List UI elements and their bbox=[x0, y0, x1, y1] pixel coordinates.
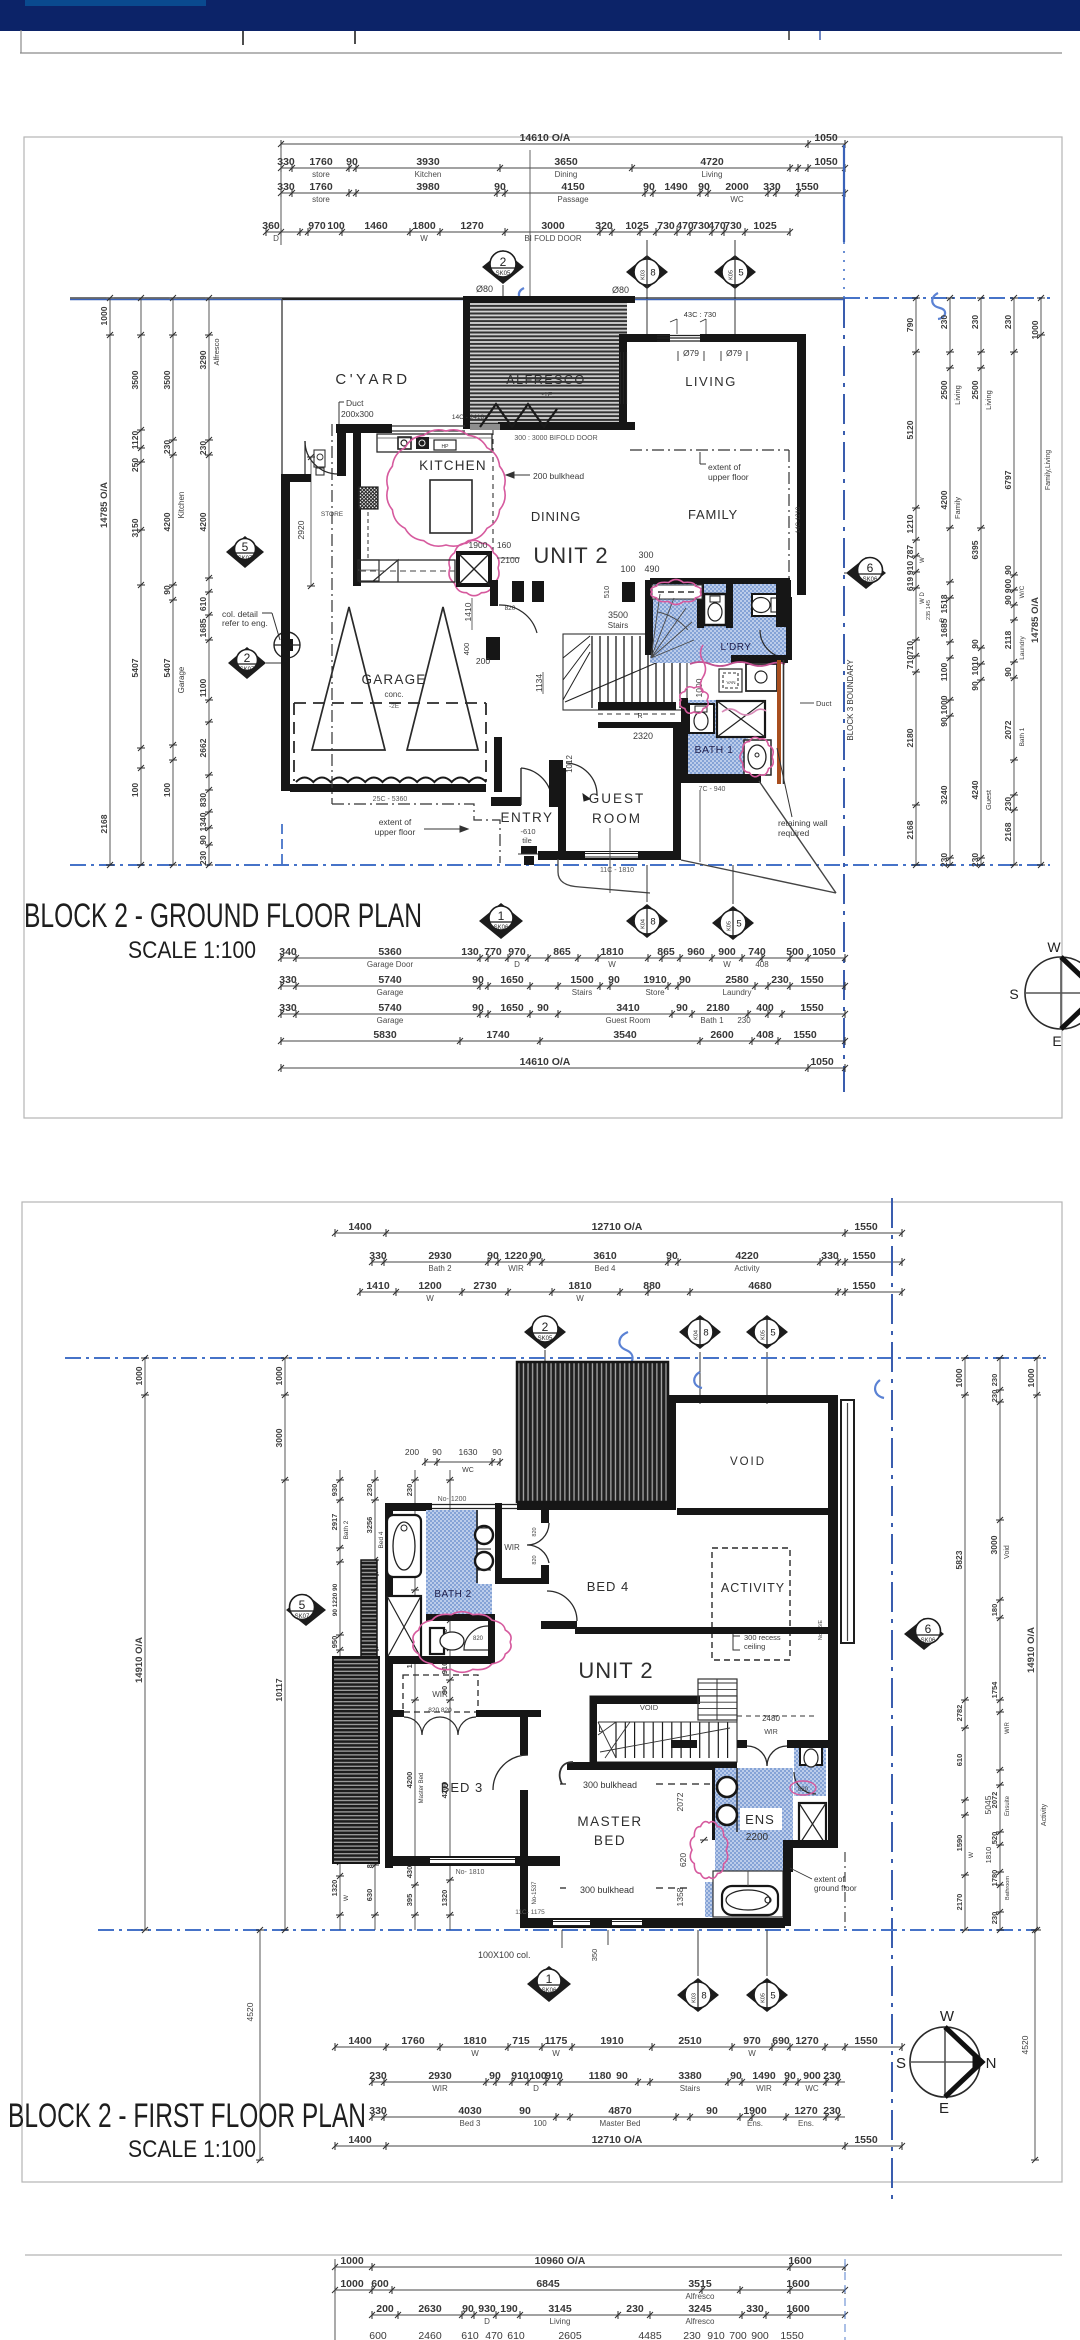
svg-text:Activity: Activity bbox=[1041, 1803, 1048, 1826]
svg-text:14785 O/A: 14785 O/A bbox=[1030, 597, 1041, 643]
svg-text:1490: 1490 bbox=[664, 181, 688, 193]
svg-text:14910 O/A: 14910 O/A bbox=[134, 1637, 145, 1683]
svg-text:100: 100 bbox=[162, 783, 172, 797]
svg-text:Bath 1: Bath 1 bbox=[1019, 727, 1026, 746]
svg-text:2168: 2168 bbox=[99, 814, 109, 833]
svg-text:Void: Void bbox=[1004, 1545, 1011, 1559]
svg-text:970: 970 bbox=[743, 2035, 761, 2047]
svg-text:330: 330 bbox=[746, 2303, 764, 2315]
svg-text:6845: 6845 bbox=[536, 2278, 560, 2290]
svg-text:250: 250 bbox=[130, 458, 140, 472]
svg-text:SK06: SK06 bbox=[921, 1638, 936, 1644]
svg-text:Bath 1: Bath 1 bbox=[700, 1016, 724, 1025]
svg-text:230: 230 bbox=[198, 441, 208, 455]
svg-text:500: 500 bbox=[786, 946, 804, 958]
svg-text:5: 5 bbox=[242, 540, 249, 554]
svg-text:820: 820 bbox=[473, 1636, 484, 1642]
svg-text:90: 90 bbox=[492, 1447, 502, 1457]
svg-text:N: N bbox=[986, 2055, 997, 2072]
svg-text:2000: 2000 bbox=[725, 181, 749, 193]
svg-text:WC: WC bbox=[730, 195, 744, 204]
svg-text:230: 230 bbox=[823, 2070, 841, 2082]
svg-text:extent of: extent of bbox=[379, 817, 412, 827]
svg-text:230: 230 bbox=[683, 2330, 701, 2340]
svg-text:1200: 1200 bbox=[418, 1280, 442, 1292]
svg-text:5045: 5045 bbox=[983, 1795, 993, 1814]
svg-text:10960 O/A: 10960 O/A bbox=[535, 2255, 586, 2267]
svg-text:1050: 1050 bbox=[814, 132, 838, 144]
svg-text:extent of: extent of bbox=[708, 462, 741, 472]
svg-text:340: 340 bbox=[279, 946, 297, 958]
svg-text:Duct: Duct bbox=[816, 699, 832, 708]
svg-text:1012: 1012 bbox=[565, 755, 574, 773]
svg-text:90: 90 bbox=[346, 156, 358, 168]
svg-text:Family,Living: Family,Living bbox=[1045, 450, 1052, 490]
svg-text:3150: 3150 bbox=[130, 518, 140, 537]
svg-text:6: 6 bbox=[925, 1622, 932, 1636]
svg-text:E: E bbox=[939, 2100, 949, 2117]
svg-text:1760: 1760 bbox=[309, 181, 333, 193]
svg-text:1754: 1754 bbox=[990, 1681, 999, 1699]
svg-text:SK06: SK06 bbox=[542, 1988, 557, 1994]
svg-text:3650: 3650 bbox=[554, 156, 578, 168]
svg-text:900: 900 bbox=[1003, 579, 1013, 593]
svg-text:200: 200 bbox=[405, 1447, 419, 1457]
svg-text:700: 700 bbox=[729, 2330, 747, 2340]
svg-text:Garage: Garage bbox=[377, 1016, 404, 1025]
svg-text:970: 970 bbox=[308, 220, 326, 232]
svg-text:Ens.: Ens. bbox=[798, 2119, 814, 2128]
svg-text:90: 90 bbox=[970, 681, 980, 691]
svg-text:300 : 3000 BIFOLD DOOR: 300 : 3000 BIFOLD DOOR bbox=[514, 435, 597, 442]
svg-text:BI FOLD DOOR: BI FOLD DOOR bbox=[524, 234, 582, 243]
svg-text:1500: 1500 bbox=[570, 974, 594, 986]
svg-text:2920: 2920 bbox=[296, 520, 306, 539]
svg-text:230: 230 bbox=[198, 851, 208, 865]
svg-text:1000: 1000 bbox=[340, 2255, 364, 2267]
svg-text:230: 230 bbox=[970, 853, 980, 867]
svg-text:2100: 2100 bbox=[501, 555, 520, 565]
svg-text:1460: 1460 bbox=[364, 220, 388, 232]
svg-text:7C - 940: 7C - 940 bbox=[699, 786, 726, 793]
svg-text:WIR: WIR bbox=[432, 2084, 448, 2093]
svg-text:VOID: VOID bbox=[730, 1456, 766, 1468]
svg-text:ROOM: ROOM bbox=[592, 811, 642, 826]
svg-text:230: 230 bbox=[939, 853, 949, 867]
svg-text:14C-1210: 14C-1210 bbox=[796, 506, 802, 533]
svg-text:1100: 1100 bbox=[198, 679, 208, 698]
svg-text:470: 470 bbox=[485, 2330, 503, 2340]
svg-text:1550: 1550 bbox=[854, 2134, 878, 2146]
svg-text:2630: 2630 bbox=[418, 2303, 442, 2315]
svg-text:400: 400 bbox=[756, 1002, 774, 1014]
svg-text:90: 90 bbox=[472, 974, 484, 986]
svg-text:WIR: WIR bbox=[756, 2084, 772, 2093]
svg-text:3245: 3245 bbox=[688, 2303, 712, 2315]
svg-text:Dining: Dining bbox=[555, 170, 578, 179]
svg-text:1025: 1025 bbox=[625, 220, 649, 232]
svg-text:SK05: SK05 bbox=[538, 1336, 553, 1342]
svg-text:5360: 5360 bbox=[378, 946, 402, 958]
svg-text:3380: 3380 bbox=[678, 2070, 702, 2082]
svg-text:VAN: VAN bbox=[727, 680, 736, 685]
svg-text:1400: 1400 bbox=[348, 2035, 372, 2047]
svg-text:90: 90 bbox=[494, 181, 506, 193]
svg-text:90: 90 bbox=[198, 835, 208, 845]
svg-text:2917: 2917 bbox=[330, 1514, 339, 1531]
svg-text:4200: 4200 bbox=[939, 490, 949, 509]
svg-text:Kitchen: Kitchen bbox=[177, 492, 186, 519]
svg-text:1000: 1000 bbox=[340, 2278, 364, 2290]
svg-text:90: 90 bbox=[939, 717, 949, 727]
svg-text:4485: 4485 bbox=[638, 2330, 662, 2340]
svg-text:No- 1810: No- 1810 bbox=[456, 1869, 485, 1876]
svg-text:880: 880 bbox=[643, 1280, 661, 1292]
svg-text:W: W bbox=[1047, 939, 1061, 955]
svg-text:C'YARD: C'YARD bbox=[335, 371, 410, 388]
svg-text:14785 O/A: 14785 O/A bbox=[99, 482, 110, 528]
svg-text:330: 330 bbox=[763, 181, 781, 193]
svg-text:710: 710 bbox=[905, 641, 915, 655]
svg-text:730: 730 bbox=[657, 220, 675, 232]
svg-text:5740: 5740 bbox=[378, 1002, 402, 1014]
svg-text:No-1537: No-1537 bbox=[532, 1881, 538, 1905]
svg-text:14610 O/A: 14610 O/A bbox=[520, 1056, 571, 1068]
svg-text:11C - 1810: 11C - 1810 bbox=[600, 867, 634, 874]
svg-text:D: D bbox=[514, 960, 520, 969]
svg-text:865: 865 bbox=[657, 946, 675, 958]
svg-text:320: 320 bbox=[595, 220, 613, 232]
svg-text:Ø80: Ø80 bbox=[612, 285, 629, 295]
svg-text:store: store bbox=[312, 170, 330, 179]
svg-text:1270: 1270 bbox=[794, 2105, 818, 2117]
svg-text:-610: -610 bbox=[520, 827, 535, 836]
svg-text:190: 190 bbox=[500, 2303, 518, 2315]
svg-text:BATH 1: BATH 1 bbox=[695, 744, 734, 756]
svg-text:2: 2 bbox=[542, 1320, 549, 1334]
svg-text:790: 790 bbox=[905, 318, 915, 332]
svg-text:11C- 1175: 11C- 1175 bbox=[515, 1909, 545, 1916]
svg-text:S: S bbox=[896, 2055, 906, 2072]
svg-text:330: 330 bbox=[369, 2105, 387, 2117]
svg-text:230: 230 bbox=[369, 2070, 387, 2082]
svg-text:1: 1 bbox=[498, 909, 505, 923]
svg-text:1000: 1000 bbox=[954, 1368, 964, 1387]
svg-text:Living: Living bbox=[953, 385, 962, 405]
svg-text:230: 230 bbox=[990, 1374, 999, 1387]
svg-text:2500: 2500 bbox=[970, 380, 980, 399]
svg-text:Ø79: Ø79 bbox=[726, 348, 742, 358]
svg-text:WIR: WIR bbox=[504, 1543, 520, 1552]
svg-text:K03: K03 bbox=[641, 270, 647, 280]
svg-text:Garage: Garage bbox=[377, 988, 404, 997]
svg-text:2170: 2170 bbox=[955, 1894, 964, 1911]
svg-text:conc.: conc. bbox=[384, 690, 403, 699]
svg-text:5120: 5120 bbox=[905, 420, 915, 439]
svg-text:W: W bbox=[723, 960, 731, 969]
svg-text:5: 5 bbox=[736, 919, 741, 930]
svg-text:1600: 1600 bbox=[788, 2255, 812, 2267]
svg-text:740: 740 bbox=[748, 946, 766, 958]
svg-text:1518: 1518 bbox=[939, 594, 949, 613]
svg-text:2782: 2782 bbox=[955, 1705, 964, 1722]
svg-text:W: W bbox=[576, 1294, 584, 1303]
svg-text:2662: 2662 bbox=[198, 738, 208, 757]
svg-text:2072: 2072 bbox=[675, 1792, 685, 1811]
svg-text:3410: 3410 bbox=[616, 1002, 640, 1014]
svg-text:SCALE 1:100: SCALE 1:100 bbox=[128, 937, 256, 964]
svg-text:Laundry: Laundry bbox=[1019, 636, 1026, 660]
svg-text:D: D bbox=[533, 2084, 539, 2093]
svg-text:130: 130 bbox=[461, 946, 479, 958]
svg-text:1000: 1000 bbox=[134, 1366, 144, 1385]
svg-text:Bath 2: Bath 2 bbox=[343, 1520, 350, 1539]
svg-text:610: 610 bbox=[198, 597, 208, 611]
svg-text:90: 90 bbox=[1003, 667, 1013, 677]
svg-text:730: 730 bbox=[724, 220, 742, 232]
svg-text:BLOCK 3 BOUNDARY: BLOCK 3 BOUNDARY bbox=[846, 659, 855, 741]
svg-text:960: 960 bbox=[687, 946, 705, 958]
svg-text:1650: 1650 bbox=[500, 1002, 524, 1014]
svg-text:1220: 1220 bbox=[504, 1250, 528, 1262]
svg-text:2: 2 bbox=[500, 255, 507, 269]
svg-text:2460: 2460 bbox=[418, 2330, 442, 2340]
svg-text:900: 900 bbox=[751, 2330, 769, 2340]
svg-text:230: 230 bbox=[1003, 797, 1013, 811]
svg-text:14C - 2418: 14C - 2418 bbox=[452, 414, 485, 421]
svg-text:235 145: 235 145 bbox=[926, 600, 932, 620]
svg-text:Bed 3: Bed 3 bbox=[460, 2119, 481, 2128]
svg-text:230: 230 bbox=[771, 974, 789, 986]
svg-text:950: 950 bbox=[330, 1636, 339, 1649]
svg-text:6797: 6797 bbox=[1003, 470, 1013, 489]
svg-text:160: 160 bbox=[497, 540, 511, 550]
svg-text:770: 770 bbox=[484, 946, 502, 958]
svg-text:K05: K05 bbox=[761, 1993, 767, 2003]
svg-text:1900: 1900 bbox=[469, 540, 488, 550]
svg-text:1: 1 bbox=[546, 1972, 553, 1986]
svg-text:Ensuite: Ensuite bbox=[1005, 1795, 1011, 1816]
svg-text:910: 910 bbox=[905, 561, 915, 575]
svg-text:3500: 3500 bbox=[130, 370, 140, 389]
svg-text:Bed 4: Bed 4 bbox=[378, 1531, 385, 1548]
svg-text:3980: 3980 bbox=[416, 181, 440, 193]
svg-text:ground floor: ground floor bbox=[814, 1884, 857, 1893]
svg-text:2180: 2180 bbox=[905, 728, 915, 747]
svg-text:230: 230 bbox=[990, 1912, 999, 1925]
svg-text:Ø79: Ø79 bbox=[683, 348, 699, 358]
svg-text:90: 90 bbox=[784, 2070, 796, 2082]
svg-text:330: 330 bbox=[279, 1002, 297, 1014]
svg-text:upper floor: upper floor bbox=[708, 472, 749, 482]
svg-text:600: 600 bbox=[369, 2330, 387, 2340]
svg-text:R: R bbox=[637, 713, 642, 720]
svg-text:Activity: Activity bbox=[734, 1264, 759, 1273]
svg-text:300: 300 bbox=[638, 550, 653, 560]
svg-text:2072: 2072 bbox=[1003, 720, 1013, 739]
svg-text:WC: WC bbox=[462, 1467, 474, 1474]
svg-text:Guest Room: Guest Room bbox=[606, 1016, 651, 1025]
svg-text:610: 610 bbox=[507, 2330, 525, 2340]
svg-text:Master Bed: Master Bed bbox=[419, 1773, 425, 1804]
svg-text:BLOCK 2 - GROUND FLOOR PLAN: BLOCK 2 - GROUND FLOOR PLAN bbox=[24, 897, 422, 935]
svg-text:W: W bbox=[968, 1851, 975, 1858]
svg-text:Stairs: Stairs bbox=[572, 988, 592, 997]
svg-text:K03: K03 bbox=[692, 1993, 698, 2003]
svg-text:6395: 6395 bbox=[970, 540, 980, 559]
svg-text:W: W bbox=[920, 557, 926, 563]
svg-text:1050: 1050 bbox=[812, 946, 836, 958]
svg-text:1320: 1320 bbox=[330, 1880, 339, 1897]
svg-text:820: 820 bbox=[505, 605, 516, 612]
svg-text:200: 200 bbox=[476, 656, 490, 666]
svg-text:Stairs: Stairs bbox=[680, 2084, 700, 2093]
svg-text:715: 715 bbox=[512, 2035, 530, 2047]
svg-text:BED 3: BED 3 bbox=[441, 1780, 484, 1795]
svg-text:2930: 2930 bbox=[428, 1250, 452, 1262]
svg-text:2600: 2600 bbox=[710, 1029, 734, 1041]
svg-text:K04: K04 bbox=[694, 1330, 700, 1340]
svg-text:1600: 1600 bbox=[786, 2278, 810, 2290]
svg-text:520: 520 bbox=[990, 1832, 999, 1845]
svg-text:S: S bbox=[1009, 986, 1018, 1002]
svg-text:SK07: SK07 bbox=[295, 1614, 310, 1620]
svg-text:1740: 1740 bbox=[486, 1029, 510, 1041]
svg-text:1550: 1550 bbox=[795, 181, 819, 193]
svg-text:90: 90 bbox=[679, 974, 691, 986]
svg-text:W: W bbox=[552, 2049, 560, 2058]
svg-text:tile: tile bbox=[522, 836, 532, 845]
svg-text:1320: 1320 bbox=[440, 1890, 449, 1907]
svg-text:330: 330 bbox=[369, 1250, 387, 1262]
svg-text:90: 90 bbox=[530, 1250, 542, 1262]
svg-text:90: 90 bbox=[608, 974, 620, 986]
svg-text:1134: 1134 bbox=[534, 674, 544, 693]
svg-text:2: 2 bbox=[244, 651, 251, 665]
svg-text:3000: 3000 bbox=[274, 1428, 284, 1447]
svg-text:required: required bbox=[778, 828, 809, 838]
svg-text:ACTIVITY: ACTIVITY bbox=[721, 1581, 785, 1595]
svg-text:8: 8 bbox=[701, 1991, 706, 2002]
svg-text:230: 230 bbox=[823, 2105, 841, 2117]
svg-text:1400: 1400 bbox=[348, 1221, 372, 1233]
svg-text:4520: 4520 bbox=[245, 2002, 255, 2021]
svg-text:690: 690 bbox=[772, 2035, 790, 2047]
svg-text:MASTER: MASTER bbox=[577, 1814, 642, 1829]
svg-text:1000: 1000 bbox=[1030, 320, 1040, 339]
svg-text:4030: 4030 bbox=[458, 2105, 482, 2117]
svg-text:Ø80: Ø80 bbox=[476, 284, 493, 294]
svg-text:4200: 4200 bbox=[405, 1772, 414, 1789]
svg-text:SK05: SK05 bbox=[496, 271, 511, 277]
svg-text:ENS: ENS bbox=[745, 1812, 775, 1827]
svg-text:W: W bbox=[420, 234, 428, 243]
svg-text:5823: 5823 bbox=[954, 1550, 964, 1569]
svg-text:10117: 10117 bbox=[274, 1678, 284, 1701]
svg-text:330: 330 bbox=[279, 974, 297, 986]
svg-text:BED: BED bbox=[594, 1833, 626, 1848]
svg-text:90: 90 bbox=[730, 2070, 742, 2082]
svg-text:1270: 1270 bbox=[795, 2035, 819, 2047]
svg-text:L'DRY: L'DRY bbox=[721, 642, 752, 653]
svg-text:90: 90 bbox=[698, 181, 710, 193]
svg-text:100X100 col.: 100X100 col. bbox=[478, 1950, 531, 1960]
svg-text:1550: 1550 bbox=[780, 2330, 804, 2340]
svg-text:2320: 2320 bbox=[633, 731, 653, 741]
svg-text:510: 510 bbox=[602, 586, 611, 599]
svg-text:3290: 3290 bbox=[198, 350, 208, 369]
svg-text:1410: 1410 bbox=[463, 602, 473, 621]
svg-text:Family: Family bbox=[953, 497, 962, 519]
svg-text:Ens.: Ens. bbox=[747, 2119, 763, 2128]
svg-text:1180: 1180 bbox=[589, 2070, 612, 2082]
svg-text:WC: WC bbox=[805, 2084, 819, 2093]
svg-text:3515: 3515 bbox=[688, 2278, 712, 2290]
svg-text:619: 619 bbox=[905, 577, 915, 591]
svg-text:WIR: WIR bbox=[1005, 1722, 1011, 1734]
svg-text:1050: 1050 bbox=[810, 1056, 834, 1068]
svg-text:K05: K05 bbox=[729, 270, 735, 280]
svg-text:GARAGE: GARAGE bbox=[362, 672, 427, 687]
svg-text:4680: 4680 bbox=[748, 1280, 772, 1292]
svg-text:Passage: Passage bbox=[557, 195, 589, 204]
svg-text:Bed 4: Bed 4 bbox=[595, 1264, 616, 1273]
svg-text:1025: 1025 bbox=[753, 220, 777, 232]
svg-text:1410: 1410 bbox=[366, 1280, 390, 1292]
svg-text:1210: 1210 bbox=[905, 514, 915, 533]
svg-text:1760: 1760 bbox=[401, 2035, 425, 2047]
svg-text:1010: 1010 bbox=[970, 656, 980, 675]
svg-text:3610: 3610 bbox=[593, 1250, 617, 1262]
svg-text:8: 8 bbox=[650, 917, 655, 928]
svg-text:5: 5 bbox=[770, 1991, 775, 2002]
svg-text:1120: 1120 bbox=[130, 431, 140, 450]
svg-text:395: 395 bbox=[405, 1894, 414, 1907]
svg-text:W: W bbox=[343, 1894, 350, 1901]
svg-text:90: 90 bbox=[970, 639, 980, 649]
svg-text:4870: 4870 bbox=[608, 2105, 632, 2117]
svg-text:2118: 2118 bbox=[1003, 631, 1013, 650]
svg-text:2168: 2168 bbox=[1003, 822, 1013, 841]
svg-text:No- 1200: No- 1200 bbox=[438, 1496, 467, 1503]
svg-text:14610 O/A: 14610 O/A bbox=[520, 132, 571, 144]
svg-text:3500: 3500 bbox=[162, 370, 172, 389]
svg-text:W: W bbox=[426, 1294, 434, 1303]
svg-text:2580: 2580 bbox=[725, 974, 749, 986]
svg-text:4720: 4720 bbox=[700, 156, 724, 168]
svg-text:400: 400 bbox=[462, 643, 471, 656]
svg-text:1760: 1760 bbox=[309, 156, 333, 168]
svg-text:330: 330 bbox=[277, 181, 295, 193]
svg-text:230: 230 bbox=[626, 2303, 644, 2315]
svg-text:1000: 1000 bbox=[939, 695, 949, 714]
svg-text:100: 100 bbox=[130, 783, 140, 797]
svg-text:1910: 1910 bbox=[643, 974, 667, 986]
svg-text:DINING: DINING bbox=[531, 509, 581, 524]
svg-text:D: D bbox=[484, 2317, 490, 2326]
svg-text:2480: 2480 bbox=[762, 1714, 780, 1723]
svg-text:408: 408 bbox=[755, 960, 769, 969]
svg-text:930: 930 bbox=[330, 1484, 339, 1497]
svg-text:100: 100 bbox=[327, 220, 345, 232]
svg-text:WIR: WIR bbox=[508, 1264, 524, 1273]
svg-text:710: 710 bbox=[905, 655, 915, 669]
svg-text:Guest: Guest bbox=[984, 789, 993, 810]
svg-text:90: 90 bbox=[432, 1447, 442, 1457]
svg-text:2200: 2200 bbox=[746, 1832, 769, 1843]
svg-text:L: L bbox=[598, 1724, 604, 1735]
svg-text:BATH 2: BATH 2 bbox=[434, 1589, 471, 1600]
